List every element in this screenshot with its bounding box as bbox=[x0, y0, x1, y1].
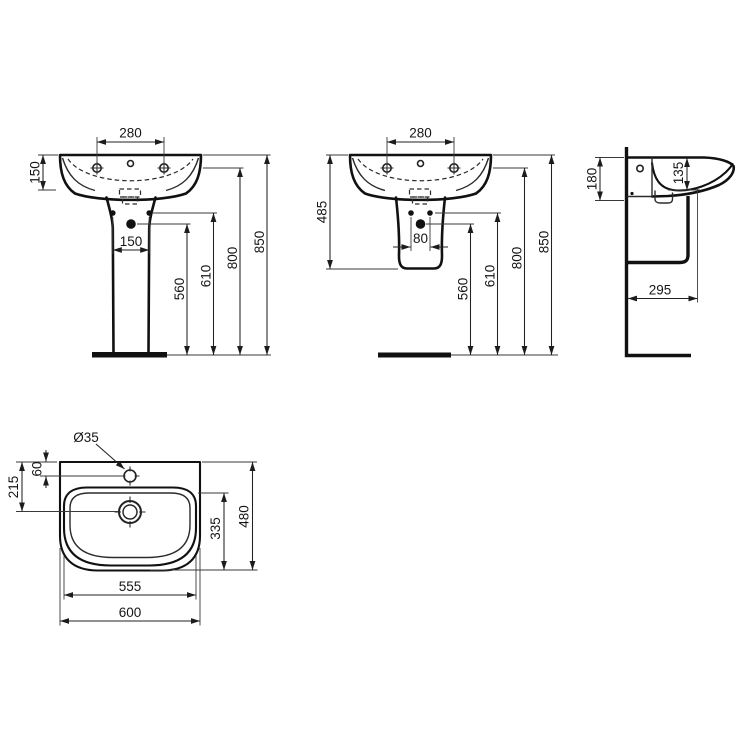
semi-pedestal-profile bbox=[628, 196, 688, 263]
trap-hidden bbox=[120, 189, 141, 197]
dim-label-610: 610 bbox=[483, 265, 498, 288]
top-view: Ø35 60 215 335 480 555 bbox=[6, 430, 257, 625]
dimension-480: 480 bbox=[202, 462, 257, 570]
dim-label-150-pedestal: 150 bbox=[120, 234, 143, 249]
basin-outer-edge bbox=[60, 462, 200, 571]
dim-label-800: 800 bbox=[225, 247, 240, 270]
dim-label-480: 480 bbox=[237, 505, 252, 528]
drain-hole bbox=[115, 497, 146, 528]
dimension-60: 60 bbox=[16, 450, 123, 488]
bracket-dot bbox=[630, 192, 633, 195]
dim-label-800: 800 bbox=[510, 247, 525, 270]
basin-outline bbox=[350, 155, 491, 200]
pedestal-hole-dot-left bbox=[408, 210, 414, 216]
dim-label-560: 560 bbox=[456, 278, 471, 301]
drain-dot bbox=[416, 219, 426, 229]
floor-segment bbox=[378, 353, 451, 358]
dimension-335: 335 bbox=[150, 493, 258, 570]
dim-label-150-rim: 150 bbox=[28, 161, 43, 184]
pedestal-hole-dot-right bbox=[146, 210, 152, 216]
tap-hole bbox=[121, 467, 140, 486]
front-view-pedestal: 280 150 150 560 610 800 bbox=[28, 126, 271, 358]
trap-hidden bbox=[410, 189, 431, 197]
dim-label-555: 555 bbox=[119, 579, 142, 594]
dim-label-610: 610 bbox=[199, 265, 214, 288]
pedestal-hole-dot-left bbox=[110, 210, 116, 216]
dim-label-850: 850 bbox=[252, 231, 267, 254]
dimension-rim-drop: 150 bbox=[28, 155, 58, 190]
dim-label-80: 80 bbox=[413, 231, 428, 246]
tap-hole bbox=[418, 161, 424, 167]
dim-label-295: 295 bbox=[649, 283, 672, 298]
dim-label-485: 485 bbox=[315, 201, 330, 224]
washbasin-dimension-drawing: 280 150 150 560 610 800 bbox=[0, 0, 750, 750]
leader-tap-hole-diameter: Ø35 bbox=[73, 430, 124, 469]
dimension-180: 180 bbox=[585, 158, 624, 201]
dimension-800: 800 bbox=[203, 168, 244, 355]
dim-label-600: 600 bbox=[119, 605, 142, 620]
front-view-semi-pedestal: 280 485 80 560 610 800 bbox=[315, 126, 558, 358]
dim-label-335: 335 bbox=[208, 517, 223, 540]
dim-label-560: 560 bbox=[172, 278, 187, 301]
side-view: 180 135 295 bbox=[585, 147, 734, 356]
dim-label-280: 280 bbox=[409, 126, 432, 141]
dim-label-215: 215 bbox=[6, 476, 21, 499]
basin-outline bbox=[60, 155, 201, 200]
bowl-hidden-edge bbox=[68, 159, 193, 181]
technical-drawing-page: 280 150 150 560 610 800 bbox=[0, 0, 750, 750]
tap-hole bbox=[128, 161, 134, 167]
bowl-hidden-edge bbox=[358, 159, 483, 181]
dim-label-850: 850 bbox=[537, 231, 552, 254]
drain-dot bbox=[126, 219, 136, 229]
dim-label-dia35: Ø35 bbox=[73, 430, 99, 445]
dim-label-135: 135 bbox=[671, 162, 686, 185]
dimension-560: 560 bbox=[426, 224, 474, 355]
dim-label-60: 60 bbox=[30, 461, 45, 476]
wall-bracket bbox=[627, 158, 652, 197]
pedestal-hole-dot-right bbox=[427, 210, 433, 216]
dimension-800: 800 bbox=[493, 168, 528, 355]
dim-label-280: 280 bbox=[119, 126, 142, 141]
basin-profile-bowl bbox=[652, 163, 733, 190]
bracket-fixing-hole bbox=[637, 165, 643, 171]
pedestal-foot bbox=[92, 352, 167, 358]
dim-label-180: 180 bbox=[585, 168, 600, 191]
dimension-560: 560 bbox=[137, 224, 191, 355]
dimension-555: 555 bbox=[64, 556, 196, 600]
dimension-135: 135 bbox=[668, 158, 700, 190]
